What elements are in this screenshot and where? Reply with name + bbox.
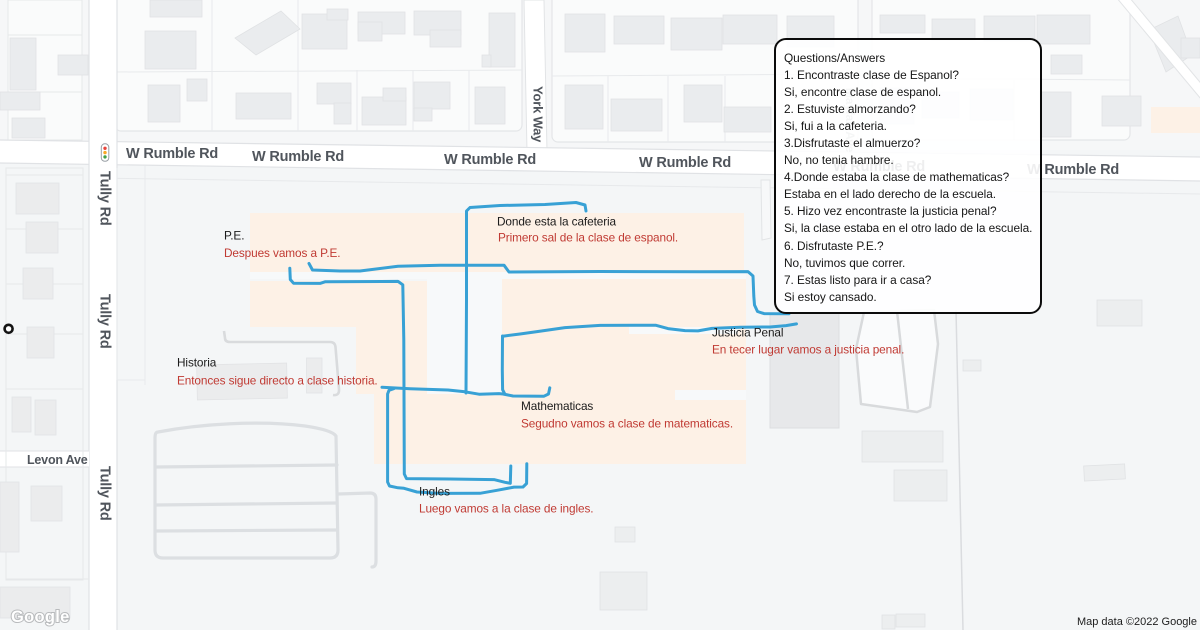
svg-text:Ingles: Ingles xyxy=(419,485,450,499)
svg-text:Segudno vamos a clase de matem: Segudno vamos a clase de matematicas. xyxy=(521,416,733,430)
svg-text:W Rumble Rd: W Rumble Rd xyxy=(444,152,536,168)
svg-text:Despues vamos a P.E.: Despues vamos a P.E. xyxy=(224,246,340,260)
svg-text:Donde esta la cafeteria: Donde esta la cafeteria xyxy=(497,214,617,228)
svg-text:W Rumble Rd: W Rumble Rd xyxy=(126,146,218,162)
svg-text:Entonces sigue directo a clase: Entonces sigue directo a clase historia. xyxy=(177,374,378,388)
svg-text:W Rumble Rd: W Rumble Rd xyxy=(639,155,731,171)
svg-text:Historia: Historia xyxy=(177,356,217,370)
svg-text:Google: Google xyxy=(11,608,70,626)
svg-text:Primero sal de la clase de esp: Primero sal de la clase de espanol. xyxy=(498,230,678,244)
svg-text:Mathematicas: Mathematicas xyxy=(521,399,593,413)
svg-text:Tully Rd: Tully Rd xyxy=(97,171,113,226)
svg-text:Tully Rd: Tully Rd xyxy=(97,466,113,521)
svg-text:En tecer lugar vamos a justici: En tecer lugar vamos a justicia penal. xyxy=(712,343,904,357)
svg-text:Tully Rd: Tully Rd xyxy=(97,294,113,349)
svg-text:York Way: York Way xyxy=(531,86,546,143)
svg-text:P.E.: P.E. xyxy=(224,229,244,243)
svg-text:W Rumble Rd: W Rumble Rd xyxy=(252,149,344,165)
svg-text:Justicia Penal: Justicia Penal xyxy=(712,326,783,340)
svg-text:Luego vamos a la clase de ingl: Luego vamos a la clase de ingles. xyxy=(419,502,593,516)
svg-text:Levon Ave: Levon Ave xyxy=(27,453,88,467)
